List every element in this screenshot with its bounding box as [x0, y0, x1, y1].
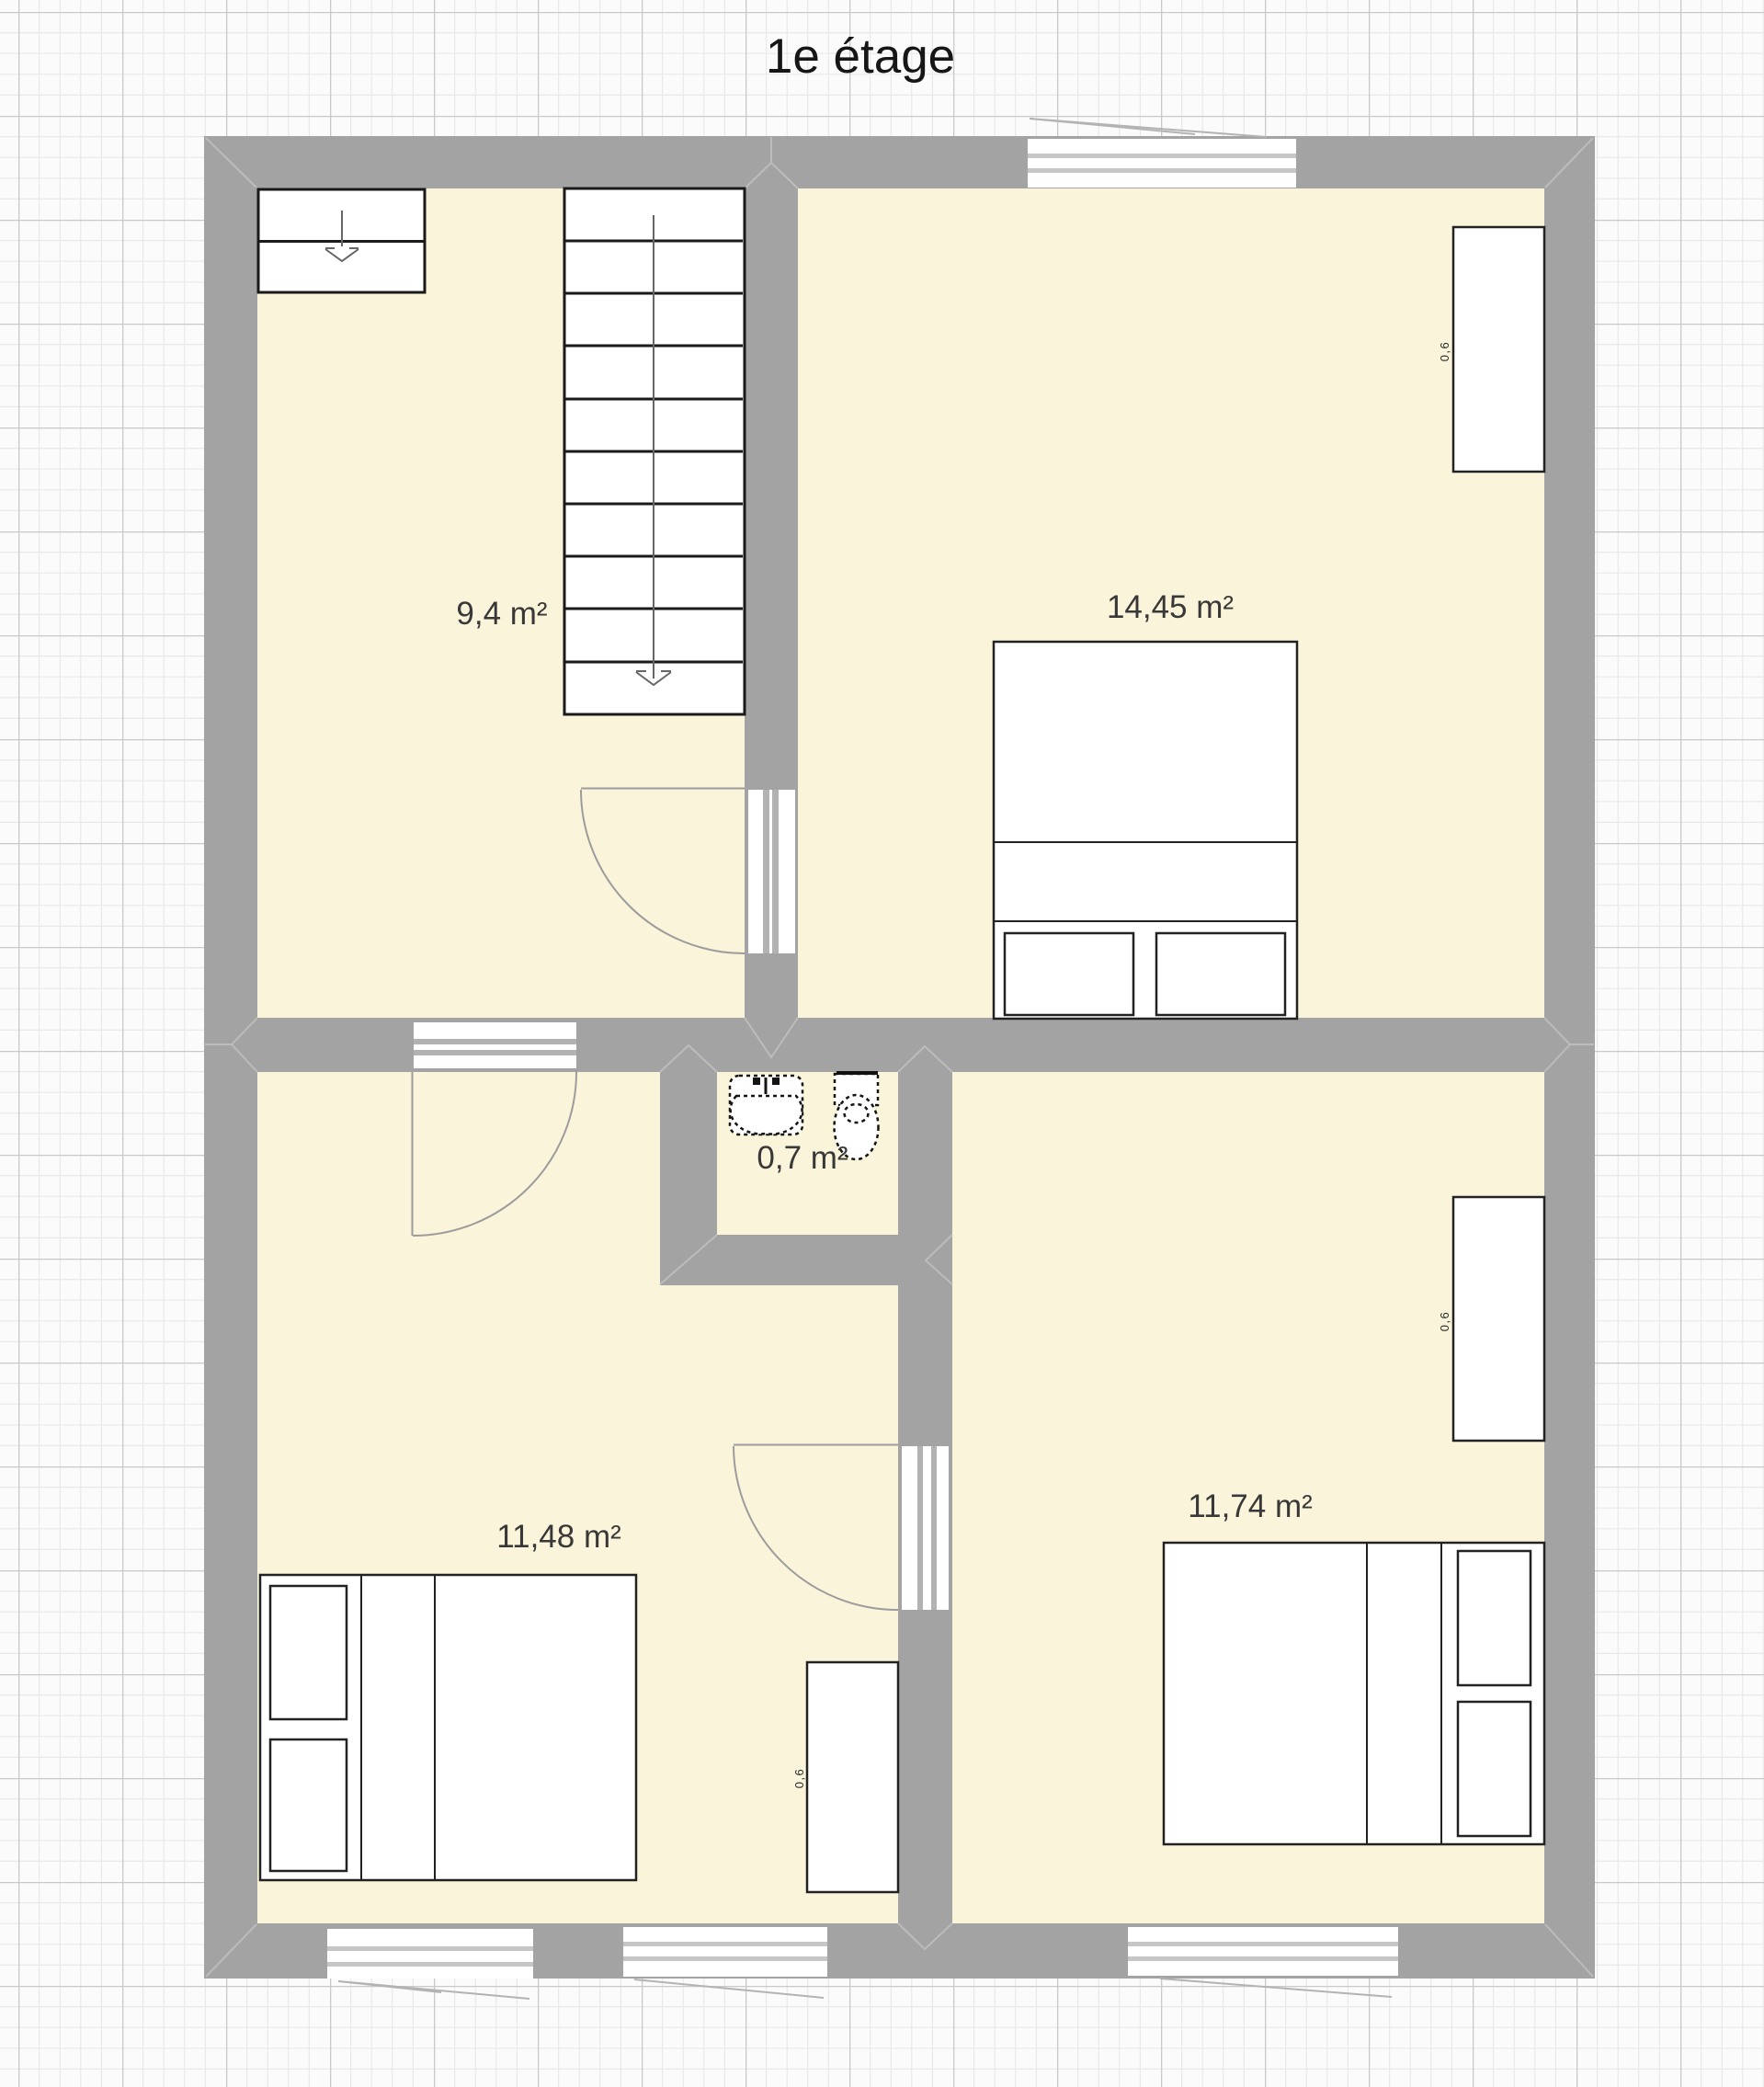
svg-text:11,48 m²: 11,48 m² — [496, 1519, 621, 1555]
svg-text:0,6: 0,6 — [1438, 1311, 1451, 1332]
svg-text:0,6: 0,6 — [1438, 341, 1451, 362]
svg-text:9,4 m²: 9,4 m² — [456, 596, 547, 632]
svg-text:0,7 m²: 0,7 m² — [757, 1140, 848, 1176]
svg-text:14,45 m²: 14,45 m² — [1107, 589, 1234, 625]
svg-text:1e étage: 1e étage — [766, 29, 955, 84]
svg-text:11,74 m²: 11,74 m² — [1188, 1488, 1313, 1524]
svg-text:0,6: 0,6 — [792, 1768, 806, 1789]
